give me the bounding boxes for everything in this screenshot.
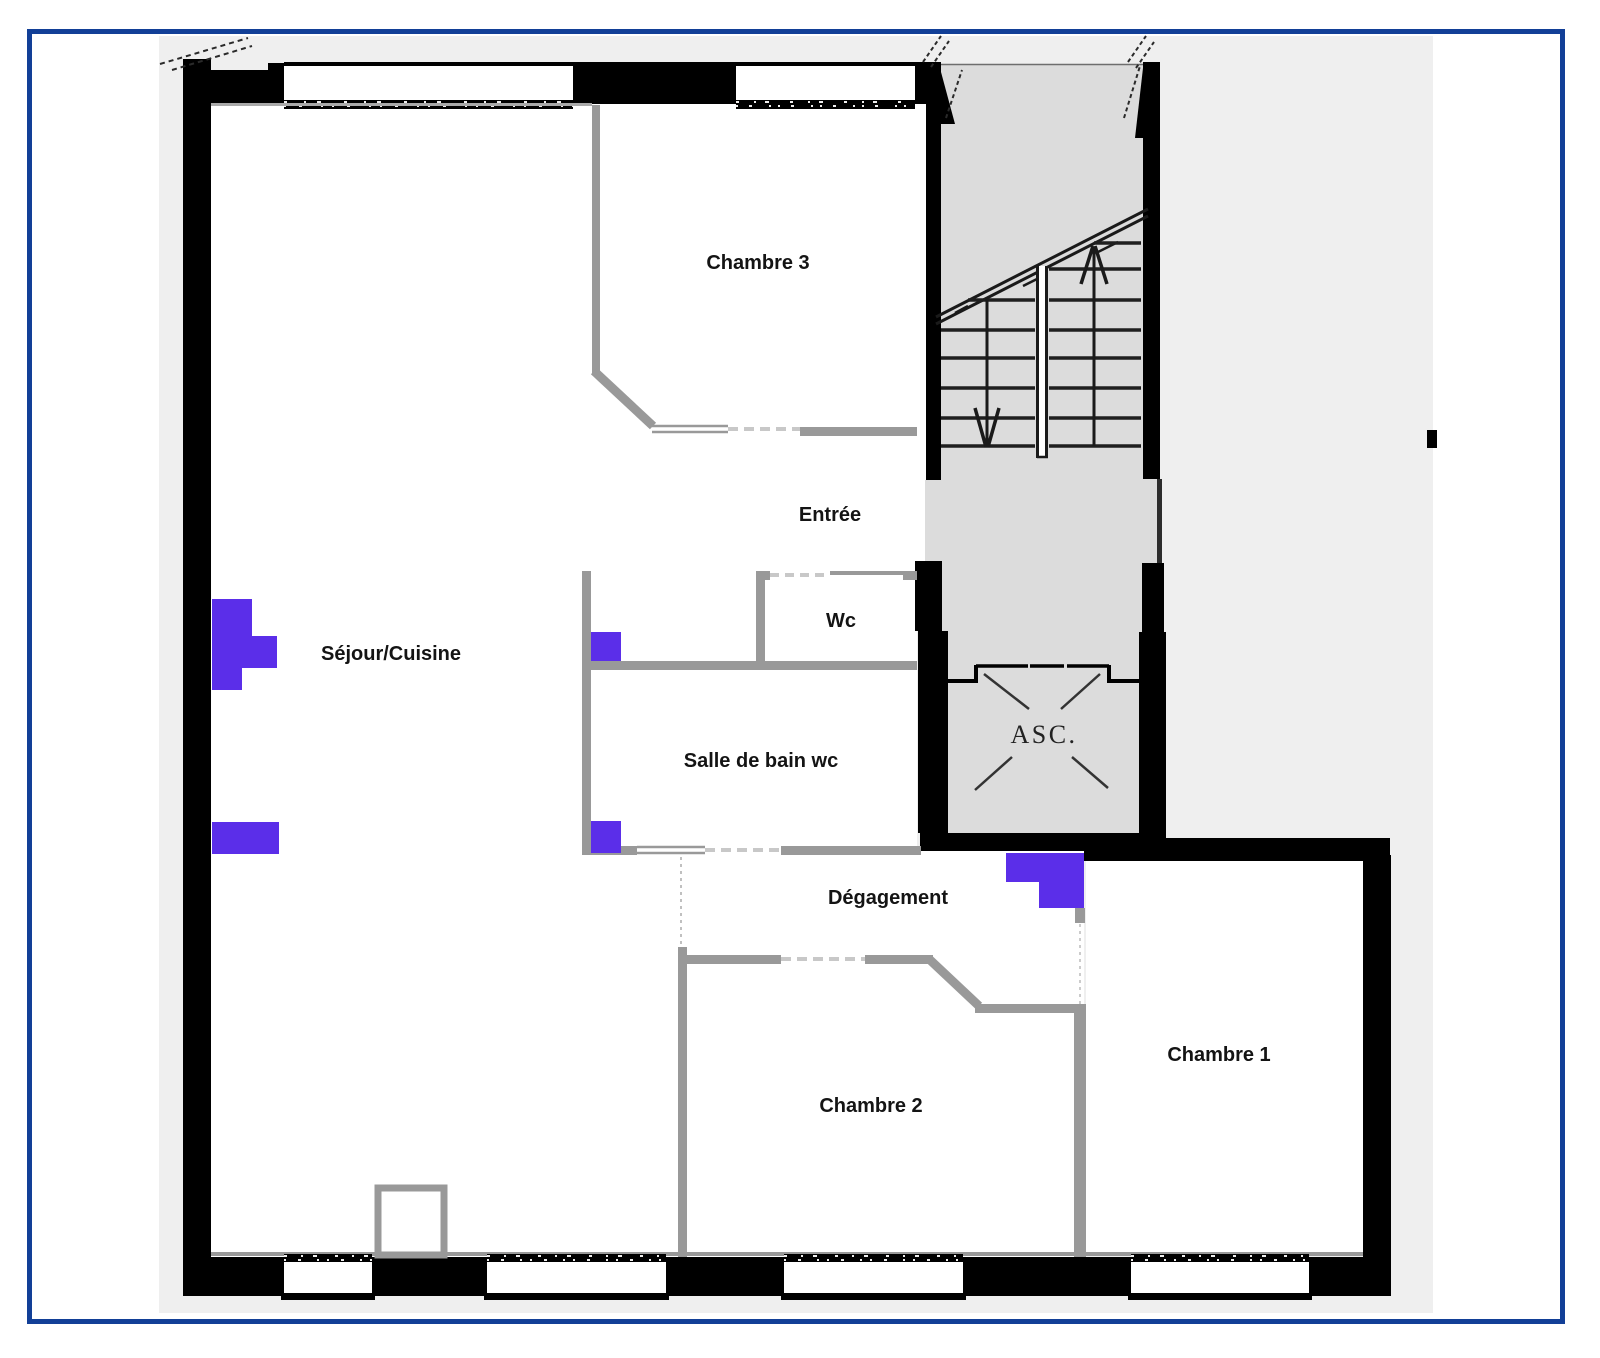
svg-text:Chambre 1: Chambre 1 xyxy=(1167,1044,1270,1066)
svg-text:Séjour/Cuisine: Séjour/Cuisine xyxy=(321,643,461,665)
svg-text:Entrée: Entrée xyxy=(799,504,861,526)
svg-text:Chambre 3: Chambre 3 xyxy=(706,252,809,274)
svg-text:ASC.: ASC. xyxy=(1010,720,1077,749)
svg-text:Dégagement: Dégagement xyxy=(828,887,948,909)
svg-text:Salle de bain wc: Salle de bain wc xyxy=(684,750,839,772)
svg-text:Wc: Wc xyxy=(826,610,856,632)
svg-text:Chambre 2: Chambre 2 xyxy=(819,1095,922,1117)
